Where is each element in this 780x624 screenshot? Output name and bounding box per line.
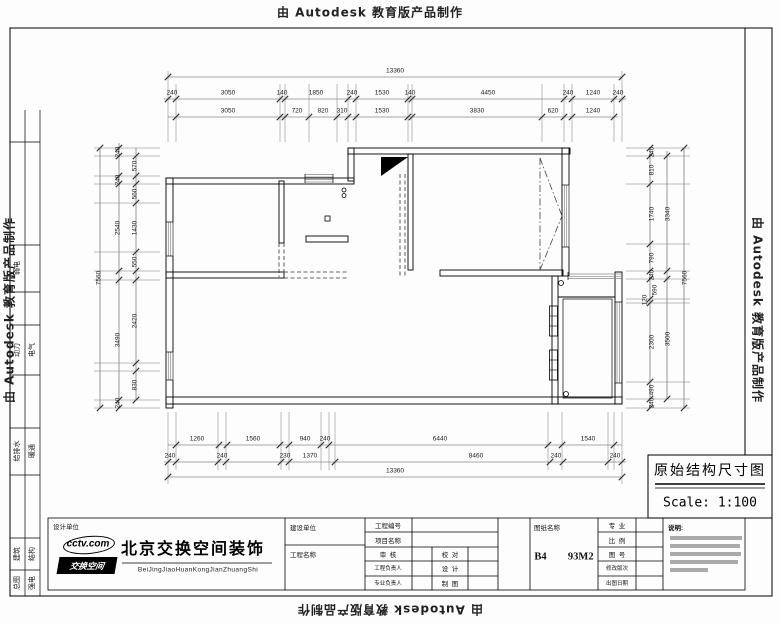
discipline-label: 专 业 (609, 520, 626, 530)
dim-label: 7560 (682, 271, 689, 285)
drawing-name-value: B4 93M2 (534, 552, 593, 563)
dim-label: 240 (649, 398, 656, 409)
made-by-bottom-text: 由 Autodesk 教育版产品制作 (297, 603, 483, 617)
dim-label: 3050 (221, 108, 235, 115)
dim-label: 140 (405, 90, 416, 97)
dimension-ticks-group (94, 71, 690, 484)
dim-label: 6440 (433, 436, 447, 443)
dim-label: 240 (649, 147, 656, 158)
item-name-label: 项目名称 (375, 535, 401, 545)
made-by-right: 由 Autodesk 教育版产品制作 (750, 217, 767, 403)
dim-label: 1850 (309, 90, 323, 97)
dim-label: 3050 (221, 90, 235, 97)
project-name-label: 工程名称 (290, 549, 316, 559)
dim-label: 3340 (665, 207, 672, 221)
dim-label: 3500 (665, 332, 672, 346)
dim-label: 790 (649, 253, 656, 264)
drawing-title: 原始结构尺寸图 (654, 460, 766, 480)
notes-line (670, 568, 708, 572)
strip-label-nuantong: 暖通 (27, 444, 37, 458)
notes-line (670, 536, 742, 540)
dim-label: 720 (292, 108, 303, 115)
made-by-bottom: 由 Autodesk 教育版产品制作 (297, 602, 483, 619)
dim-label: 13360 (386, 68, 404, 75)
dim-label: 820 (318, 108, 329, 115)
project-lead-label: 工程负责人 (374, 564, 402, 572)
dim-label: 3830 (470, 108, 484, 115)
dim-label: 560 (132, 189, 139, 200)
dimension-lines-group (100, 77, 684, 477)
dim-label: 240 (551, 453, 562, 460)
walls-group (166, 148, 622, 408)
dim-label: 140 (277, 90, 288, 97)
made-by-top: 由 Autodesk 教育版产品制作 (277, 4, 463, 21)
logo-banner-text: 交换空间 (69, 560, 105, 572)
dim-label: 1430 (132, 221, 139, 235)
strip-label-zongtu: 总图 (12, 576, 22, 590)
window-swing-group (540, 158, 562, 270)
column-fill (381, 157, 408, 176)
dim-label: 240 (115, 175, 122, 186)
strip-label-dianqi: 电气 (27, 343, 37, 357)
dim-label: 1740 (649, 207, 656, 221)
strip-label-ruodian: 弱电 (12, 261, 22, 275)
dim-label: 310 (337, 108, 348, 115)
review-label: 审 核 (380, 549, 397, 559)
dim-label: 240 (167, 90, 178, 97)
dim-label: 230 (280, 453, 291, 460)
dim-label: 620 (548, 108, 559, 115)
dim-label: 7560 (96, 271, 103, 285)
logo-banner: 交换空间 (57, 557, 118, 574)
dim-label: 1530 (375, 108, 389, 115)
dim-label: 240 (613, 90, 624, 97)
dim-label: 570 (132, 161, 139, 172)
dim-label: 240 (563, 90, 574, 97)
sheet-frame (10, 28, 772, 596)
drawing-name-label: 图纸名称 (534, 522, 560, 532)
drawing-sheet: 由 Autodesk 教育版产品制作 由 Autodesk 教育版产品制作 由 … (0, 0, 780, 624)
strip-label-jianzhu: 建筑 (12, 547, 22, 561)
proofread-label: 校 对 (442, 549, 459, 559)
dim-label: 240 (347, 90, 358, 97)
plan-symbols-group (325, 157, 569, 397)
project-no-label: 工程编号 (375, 520, 401, 530)
strip-label-qiangdian: 强电 (27, 576, 37, 590)
draft-label: 制 图 (442, 578, 459, 588)
dim-label: 1540 (581, 436, 595, 443)
dim-label: 1370 (303, 453, 317, 460)
dim-label: 240 (610, 453, 621, 460)
dim-label: 1560 (246, 436, 260, 443)
revision-label: 修改版次 (606, 564, 628, 572)
plot-date-label: 出图日期 (606, 579, 628, 587)
dim-label: 240 (320, 436, 331, 443)
design-label: 设 计 (442, 563, 459, 573)
strip-label-geipaishui: 给排水 (12, 441, 22, 462)
dim-label: 240 (165, 453, 176, 460)
notes-line (670, 552, 741, 556)
dim-label: 13360 (386, 468, 404, 475)
dim-label: 2540 (115, 221, 122, 235)
dim-label: 240 (649, 270, 656, 281)
drawing-scale: Scale: 1:100 (663, 496, 757, 511)
notes-line (670, 544, 740, 548)
notes-label: 说明: (668, 522, 683, 532)
drawing-no-label: 图 号 (609, 549, 626, 559)
made-by-right-text: 由 Autodesk 教育版产品制作 (751, 217, 765, 403)
dim-label: 1530 (375, 90, 389, 97)
scale-field-label: 比 例 (609, 535, 626, 545)
made-by-top-text: 由 Autodesk 教育版产品制作 (277, 6, 463, 20)
dim-label: 3490 (115, 333, 122, 347)
dim-label: 240 (115, 147, 122, 158)
company-name: 北京交换空间装饰 (121, 535, 265, 559)
discipline-lead-label: 专业负责人 (374, 579, 402, 587)
floor-plan-linework (0, 0, 780, 624)
dim-label: 830 (132, 380, 139, 391)
dim-label: 550 (132, 257, 139, 268)
made-by-left: 由 Autodesk 教育版产品制作 (1, 217, 18, 403)
notes-line (670, 560, 738, 564)
construction-unit-label: 建设单位 (290, 522, 316, 532)
dim-label: 810 (649, 165, 656, 176)
design-unit-label: 设计单位 (53, 521, 79, 531)
dim-label: 590 (652, 285, 659, 296)
dim-label: 940 (300, 436, 311, 443)
dim-label: 2300 (649, 335, 656, 349)
dim-label: 2420 (132, 314, 139, 328)
company-pinyin: BeiJingJiaoHuanKongJianZhuangShi (138, 567, 258, 574)
dim-label: 1240 (586, 108, 600, 115)
dim-label: 1240 (586, 90, 600, 97)
dim-label: 240 (115, 398, 122, 409)
dim-label: 490 (649, 385, 656, 396)
strip-label-jiegou: 结构 (27, 547, 37, 561)
made-by-left-text: 由 Autodesk 教育版产品制作 (3, 217, 17, 403)
dim-label: 240 (217, 453, 228, 460)
dim-label: 8460 (469, 453, 483, 460)
windows-group (166, 174, 622, 383)
strip-label-dongli: 动力 (12, 343, 22, 357)
dim-label: 1260 (190, 436, 204, 443)
dim-label: 4450 (481, 90, 495, 97)
dim-label: 120 (642, 295, 649, 306)
company-logo: cctv.com (67, 539, 110, 550)
